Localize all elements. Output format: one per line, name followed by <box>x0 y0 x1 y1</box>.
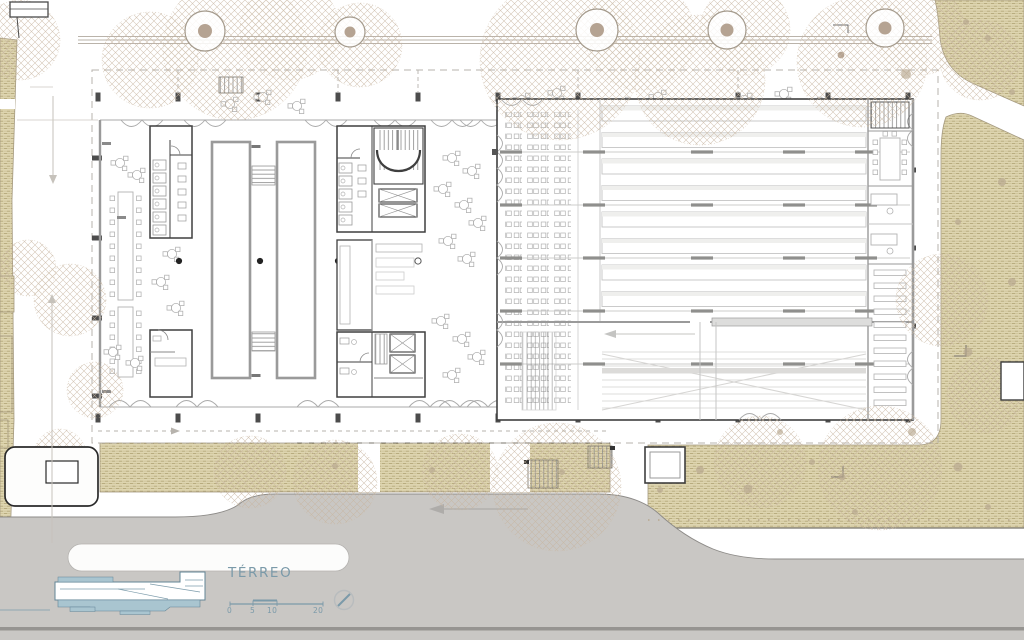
floor-title: TÉRREO <box>228 565 292 581</box>
scale-label-5: 5 <box>250 606 255 615</box>
utility-box <box>1001 362 1024 400</box>
lower-core <box>337 332 425 397</box>
stair-core <box>374 128 423 184</box>
scale-label-20: 20 <box>313 606 323 615</box>
floor-plan-page: TÉRREO 0 5 10 20 <box>0 0 1024 640</box>
stair <box>252 332 275 351</box>
service-core <box>337 126 425 397</box>
building <box>92 86 916 422</box>
skylight-box <box>645 447 685 483</box>
site-plan-svg <box>0 0 1024 640</box>
toilet-block <box>150 126 192 238</box>
hall-stair <box>522 332 556 410</box>
scale-label-0: 0 <box>227 606 232 615</box>
scale-label-10: 10 <box>267 606 277 615</box>
traffic-island <box>68 544 349 571</box>
right-hall <box>492 99 913 420</box>
office-room <box>150 330 192 397</box>
stair <box>252 166 275 185</box>
